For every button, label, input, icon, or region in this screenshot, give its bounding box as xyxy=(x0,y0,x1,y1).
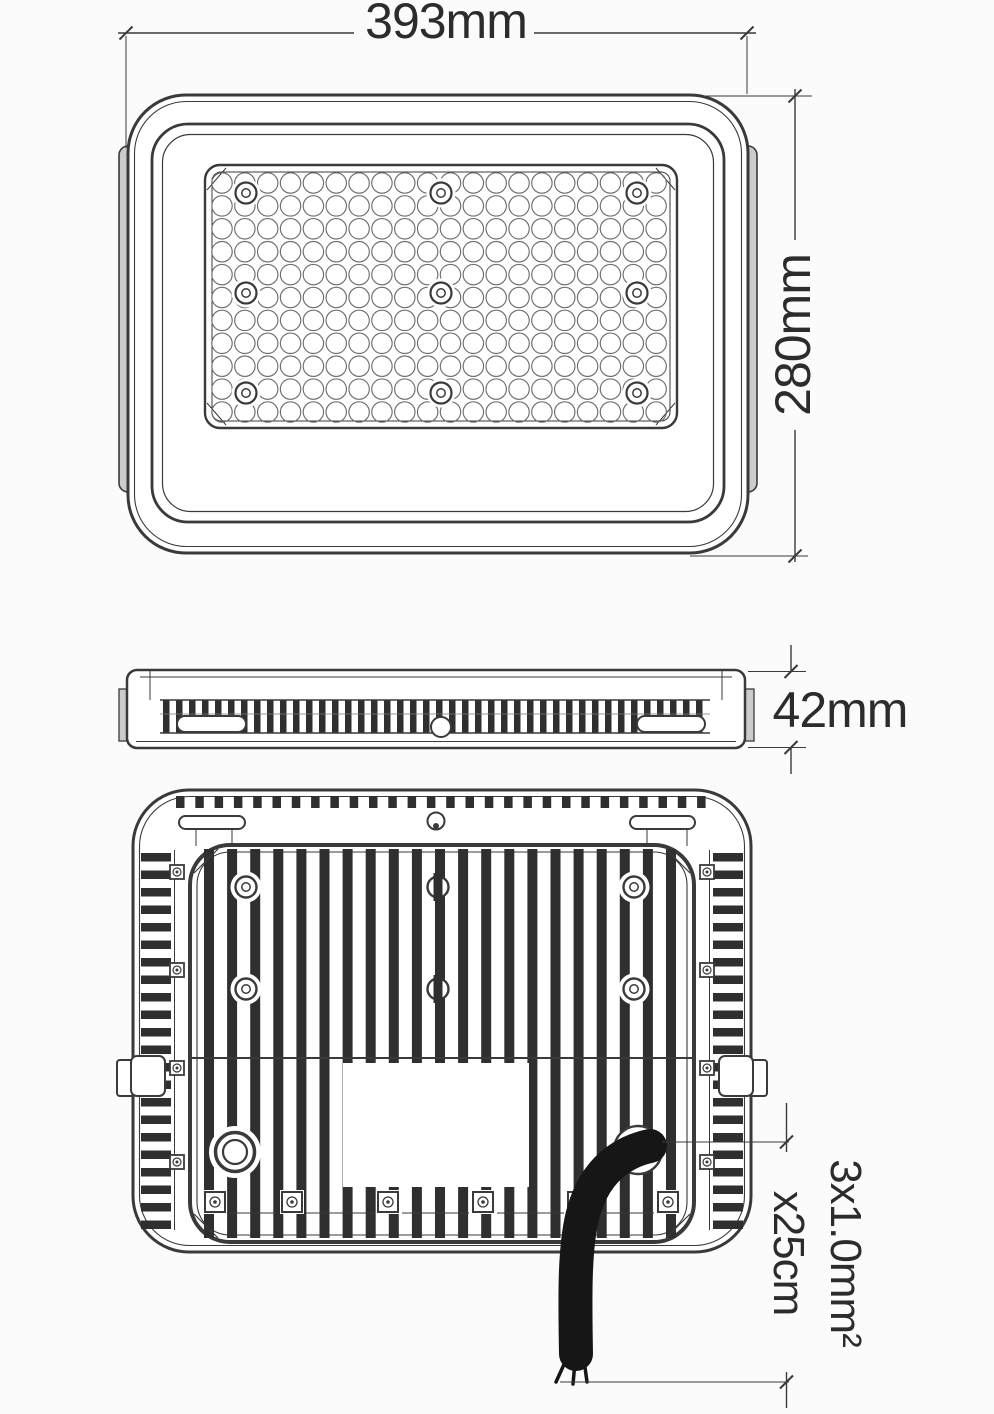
side-tab-left-inner xyxy=(131,1056,165,1096)
drawing-canvas: 393mm 280mm 42mm 3x1.0mm² x25cm xyxy=(0,0,994,1414)
keyhole-slot-left xyxy=(179,816,245,829)
screw-icon xyxy=(627,283,648,304)
side-center-hole xyxy=(431,717,451,737)
cable-gland xyxy=(216,1133,255,1172)
screw-icon xyxy=(627,383,648,404)
screw-icon xyxy=(236,979,257,1000)
bracket-end-right xyxy=(745,689,754,741)
label-plate-area xyxy=(343,1063,529,1187)
screw-icon xyxy=(236,383,257,404)
dimension-height-label: 280mm xyxy=(764,254,822,416)
cable-spec-text: 3x1.0mm² xyxy=(817,1159,874,1347)
side-tab-right-inner xyxy=(719,1056,753,1096)
cable-length-text: x25cm xyxy=(760,1159,817,1347)
screw-icon xyxy=(627,183,648,204)
cable-wire-strand xyxy=(573,1362,575,1384)
side-slot-left xyxy=(177,716,246,732)
dimension-cable-label: 3x1.0mm² x25cm xyxy=(760,1159,874,1347)
side-profile-view xyxy=(119,670,754,748)
screw-icon xyxy=(431,383,452,404)
screw-icon xyxy=(431,183,452,204)
screw-icon xyxy=(236,283,257,304)
screw-icon xyxy=(236,183,257,204)
keyhole-slot-right xyxy=(630,816,695,829)
screw-icon xyxy=(236,877,257,898)
dimension-depth-label: 42mm xyxy=(773,681,908,739)
screw-icon xyxy=(431,283,452,304)
front-view xyxy=(119,95,757,553)
back-heatsink-view xyxy=(117,790,767,1384)
screw-icon xyxy=(624,979,645,1000)
side-slot-right xyxy=(637,716,705,732)
cable-wire-strand xyxy=(556,1360,566,1382)
screw-icon xyxy=(624,877,645,898)
dimension-width-label: 393mm xyxy=(365,0,527,50)
